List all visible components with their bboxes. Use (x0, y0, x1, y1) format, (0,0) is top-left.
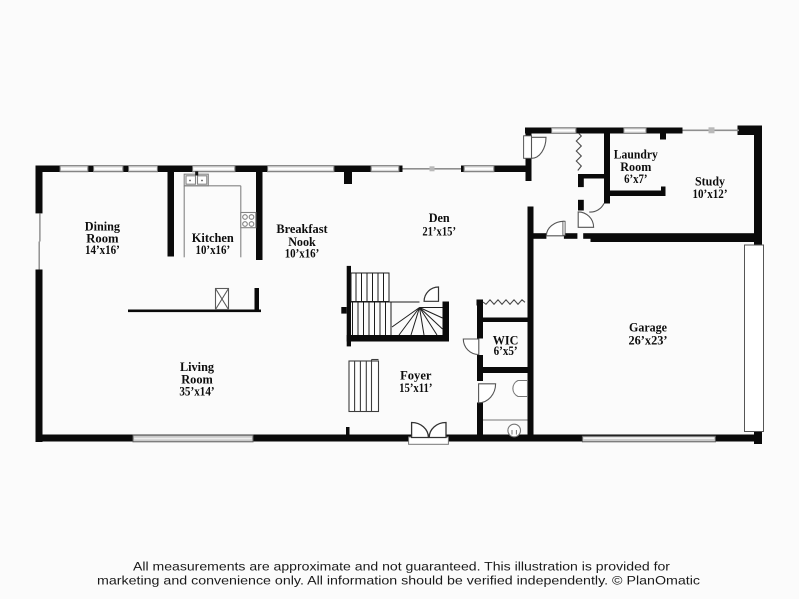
svg-text:10’x16’: 10’x16’ (196, 243, 231, 257)
svg-text:21’x15’: 21’x15’ (422, 224, 456, 238)
svg-text:Den: Den (429, 211, 450, 225)
svg-text:14’x16’: 14’x16’ (85, 243, 120, 257)
svg-text:15’x11’: 15’x11’ (399, 381, 432, 395)
svg-text:35’x14’: 35’x14’ (179, 384, 214, 398)
svg-text:26’x23’: 26’x23’ (628, 334, 667, 348)
svg-text:6’x7’: 6’x7’ (624, 172, 647, 186)
svg-text:6’x5’: 6’x5’ (494, 344, 518, 358)
svg-text:marketing and convenience only: marketing and convenience only. All info… (97, 574, 700, 588)
svg-text:Breakfast: Breakfast (276, 222, 328, 236)
svg-text:10’x16’: 10’x16’ (285, 247, 320, 261)
svg-text:All measurements are approxima: All measurements are approximate and not… (133, 560, 670, 574)
svg-text:10’x12’: 10’x12’ (693, 187, 728, 201)
